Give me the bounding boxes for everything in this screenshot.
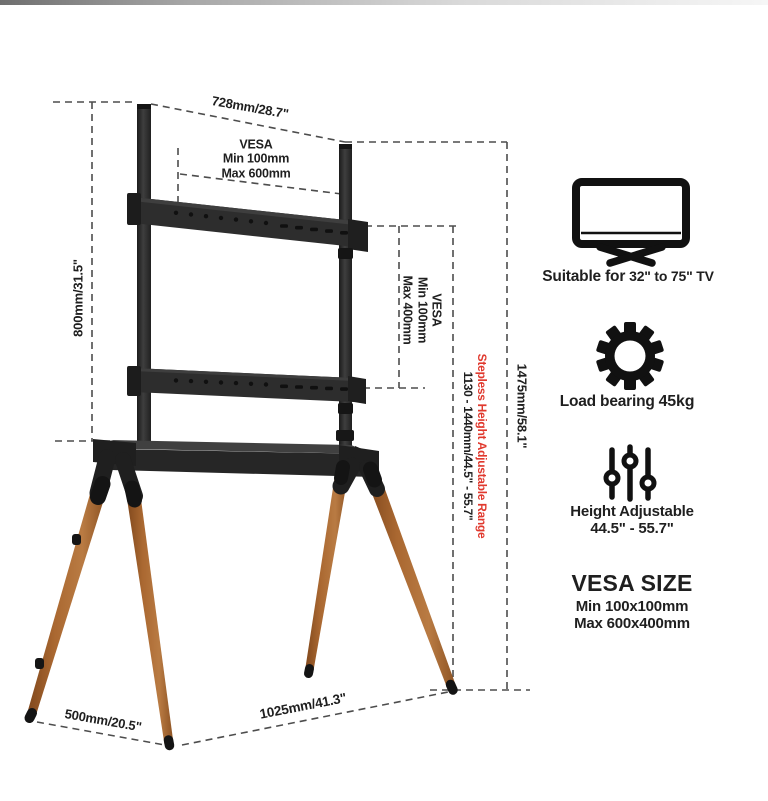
front-right-leg: [365, 472, 456, 690]
vesa-mid-line3: Max 400mm: [401, 275, 415, 344]
stepless-height-label: Stepless Height Adjustable Range 1130 - …: [460, 354, 488, 539]
support-beam: [111, 440, 374, 477]
vesa-top-line3: Max 600mm: [221, 166, 290, 180]
feature-load-label-b: 45kg: [659, 393, 695, 410]
vesa-top-line2: Min 100mm: [221, 152, 290, 166]
front-left-leg: [27, 488, 107, 718]
feature-height-label-b: 44.5" - 55.7": [570, 521, 694, 538]
stepless-range: 1130 - 1440mm/44.5" - 55.7": [460, 354, 474, 539]
vesa-mid-line1: VESA: [429, 275, 443, 344]
stepless-title: Stepless Height Adjustable Range: [474, 354, 488, 539]
tv-stand-illustration: [27, 104, 457, 746]
dim-pole-height-label: 800mm/31.5": [72, 259, 87, 337]
sliders-icon: [606, 447, 654, 499]
upper-vesa-bar: [127, 193, 368, 259]
tv-icon: [576, 182, 686, 263]
feature-tv-label-a: Suitable for: [542, 268, 625, 285]
vesa-size-values: Min 100x100mm Max 600x400mm: [574, 599, 690, 633]
vesa-top-line1: VESA: [221, 138, 290, 152]
feature-tv-label: Suitable for 32" to 75" TV: [542, 268, 713, 286]
dimension-lines: [37, 102, 530, 747]
back-right-leg: [305, 471, 349, 673]
gear-icon: [596, 322, 664, 390]
feature-load-label-a: Load bearing: [560, 393, 655, 410]
feature-tv-label-b: 32" to 75" TV: [629, 268, 714, 284]
product-dimension-diagram: 728mm/28.7" VESA Min 100mm Max 600mm 800…: [0, 0, 768, 801]
vesa-size-max: Max 600x400mm: [574, 616, 690, 633]
vesa-size-min: Min 100x100mm: [574, 599, 690, 616]
vesa-mid-line2: Min 100mm: [415, 275, 429, 344]
vesa-top-label: VESA Min 100mm Max 600mm: [221, 138, 290, 181]
left-pole: [137, 104, 151, 448]
feature-height-label-a: Height Adjustable: [570, 504, 694, 521]
lower-vesa-bar: [127, 366, 366, 414]
vesa-size-title: VESA SIZE: [571, 571, 692, 597]
wooden-legs: [27, 471, 457, 745]
dim-total-height-label: 1475mm/58.1": [514, 364, 529, 449]
vesa-mid-label: VESA Min 100mm Max 400mm: [401, 275, 444, 344]
feature-height-label: Height Adjustable 44.5" - 55.7": [570, 504, 694, 538]
feature-load-label: Load bearing 45kg: [560, 393, 695, 411]
back-left-leg: [126, 491, 173, 745]
